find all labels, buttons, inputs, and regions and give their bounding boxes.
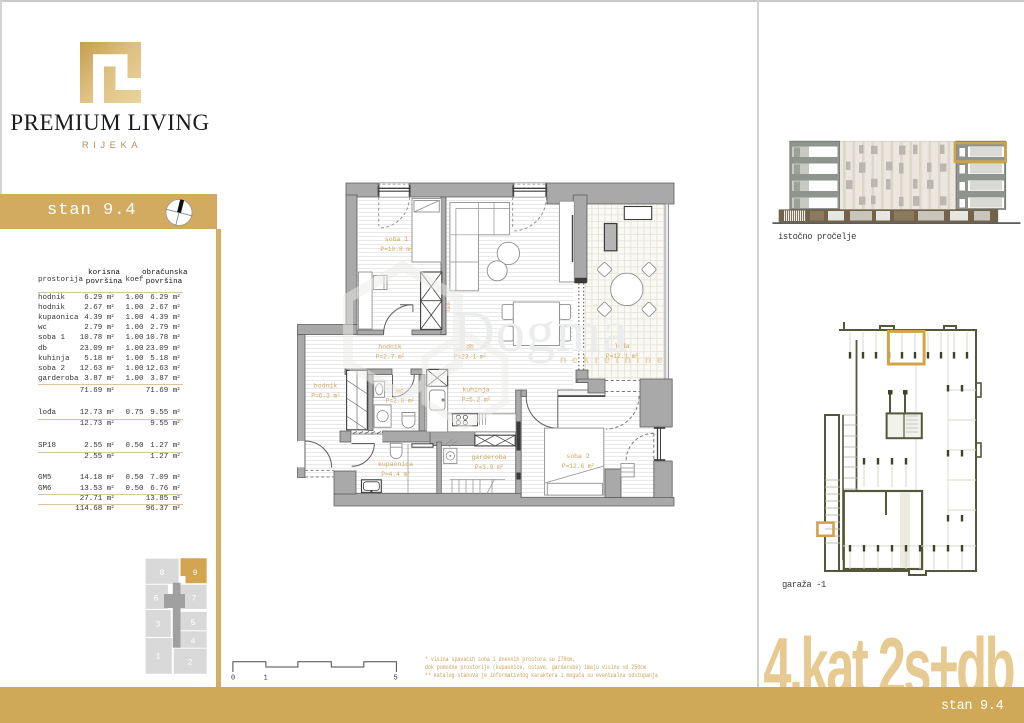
svg-text:kupaonica: kupaonica [378, 461, 413, 468]
svg-text:P=2.7 m2: P=2.7 m2 [376, 354, 405, 361]
svg-text:P=12.6 m2: P=12.6 m2 [562, 463, 595, 470]
svg-text:P=4.4 m2: P=4.4 m2 [381, 471, 410, 478]
svg-text:P=5.2 m2: P=5.2 m2 [462, 397, 491, 404]
svg-text:P=6.3 m2: P=6.3 m2 [311, 393, 340, 400]
svg-text:kuhinja: kuhinja [462, 387, 489, 394]
svg-text:nekretnine: nekretnine [560, 354, 668, 366]
svg-text:šank: šank [446, 301, 452, 312]
svg-text:hodnik: hodnik [314, 383, 338, 390]
svg-text:hodnik: hodnik [378, 344, 402, 351]
svg-text:soba 1: soba 1 [385, 236, 409, 243]
svg-text:soba 2: soba 2 [566, 453, 590, 460]
svg-text:garderoba: garderoba [471, 454, 506, 461]
svg-text:P=3.9 m2: P=3.9 m2 [475, 464, 504, 471]
svg-text:P=10.8 m2: P=10.8 m2 [380, 246, 413, 253]
